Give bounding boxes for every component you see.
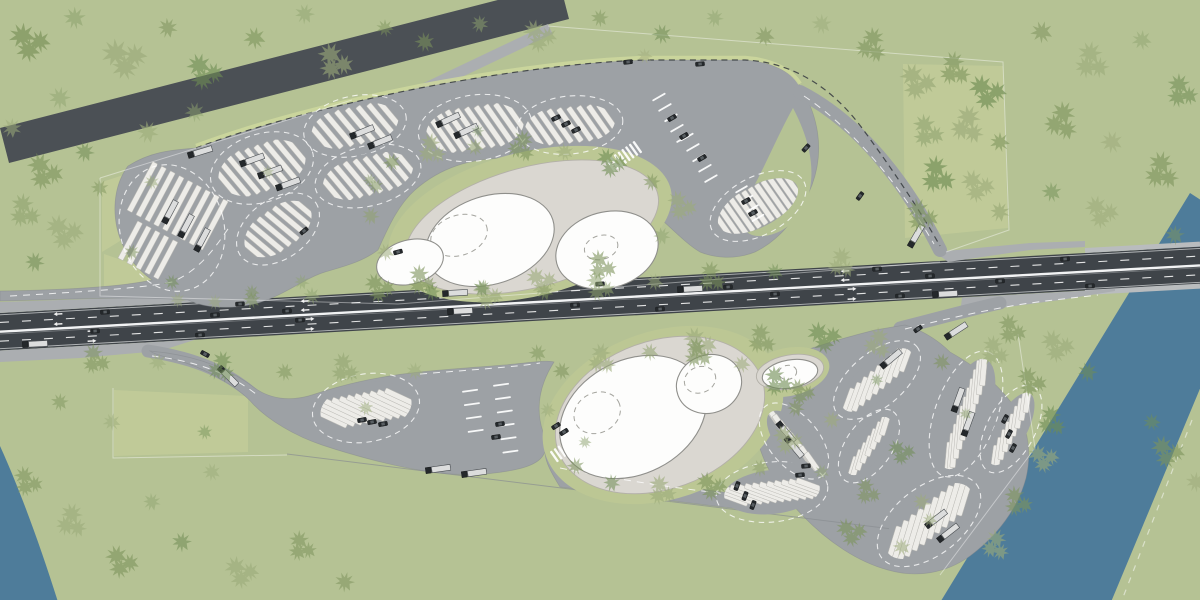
car bbox=[100, 310, 109, 315]
car bbox=[995, 279, 1004, 284]
master-plan-image bbox=[0, 0, 1200, 600]
car bbox=[570, 303, 579, 308]
car bbox=[235, 302, 244, 307]
car bbox=[770, 292, 779, 297]
truck bbox=[22, 340, 47, 347]
car bbox=[925, 274, 934, 279]
car bbox=[210, 313, 219, 318]
truck bbox=[447, 307, 472, 314]
car bbox=[295, 318, 304, 323]
car bbox=[801, 464, 810, 469]
car bbox=[723, 285, 732, 290]
car bbox=[282, 309, 291, 314]
car bbox=[1085, 284, 1094, 289]
site-plan-svg bbox=[0, 0, 1200, 600]
car bbox=[655, 307, 664, 312]
car bbox=[1060, 257, 1069, 262]
car bbox=[795, 473, 804, 478]
truck bbox=[442, 289, 467, 296]
car bbox=[195, 333, 204, 338]
car bbox=[695, 62, 704, 67]
car bbox=[623, 59, 632, 64]
car bbox=[872, 267, 881, 272]
car bbox=[895, 294, 904, 299]
car bbox=[90, 329, 99, 334]
truck bbox=[932, 290, 957, 297]
truck bbox=[677, 285, 702, 292]
